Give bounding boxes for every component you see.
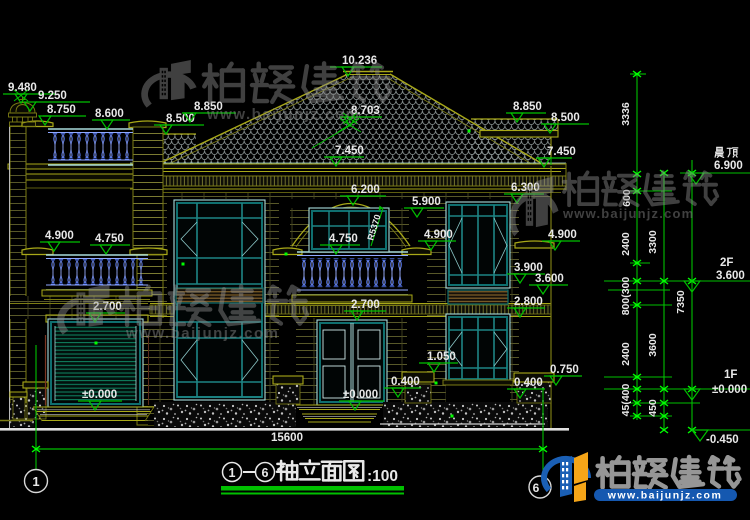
svg-text:3600: 3600 xyxy=(647,333,659,357)
svg-text:7.450: 7.450 xyxy=(547,146,576,158)
svg-text:450: 450 xyxy=(647,399,659,417)
svg-text:2400: 2400 xyxy=(620,342,632,366)
svg-text:8.850: 8.850 xyxy=(513,101,542,113)
svg-text:9.480: 9.480 xyxy=(8,82,37,94)
svg-text:-0.450: -0.450 xyxy=(706,434,739,446)
svg-text:6: 6 xyxy=(262,466,269,480)
svg-text:7350: 7350 xyxy=(675,290,687,314)
svg-text:0.400: 0.400 xyxy=(514,377,543,389)
svg-text:6: 6 xyxy=(533,481,540,495)
svg-text:3300: 3300 xyxy=(647,230,659,254)
svg-text:4.750: 4.750 xyxy=(95,233,124,245)
svg-text:±0.000: ±0.000 xyxy=(712,384,747,396)
svg-text:8.500: 8.500 xyxy=(166,113,195,125)
svg-text:2F: 2F xyxy=(720,257,733,269)
svg-text:6.200: 6.200 xyxy=(351,184,380,196)
svg-text:www.baijunjz.com: www.baijunjz.com xyxy=(562,206,694,221)
svg-text::100: :100 xyxy=(367,468,398,485)
svg-text:4.750: 4.750 xyxy=(329,233,358,245)
svg-text:4.900: 4.900 xyxy=(45,230,74,242)
svg-text:www.baijunjz.com: www.baijunjz.com xyxy=(125,325,279,342)
svg-text:9.250: 9.250 xyxy=(38,90,67,102)
svg-text:2.800: 2.800 xyxy=(514,296,543,308)
svg-text:1: 1 xyxy=(32,474,39,489)
svg-text:4.900: 4.900 xyxy=(424,229,453,241)
svg-text:3.600: 3.600 xyxy=(535,273,564,285)
svg-text:www.baijunjz.com: www.baijunjz.com xyxy=(607,490,723,502)
svg-text:0.400: 0.400 xyxy=(391,376,420,388)
svg-text:7.450: 7.450 xyxy=(335,145,364,157)
svg-text:15600: 15600 xyxy=(271,432,303,444)
svg-text:8.600: 8.600 xyxy=(95,108,124,120)
svg-text:4.900: 4.900 xyxy=(548,229,577,241)
svg-text:2400: 2400 xyxy=(620,232,632,256)
svg-text:8.500: 8.500 xyxy=(551,112,580,124)
svg-text:2.700: 2.700 xyxy=(351,299,380,311)
svg-text:±0.000: ±0.000 xyxy=(343,389,378,401)
svg-text:±0.000: ±0.000 xyxy=(82,389,117,401)
svg-text:5.900: 5.900 xyxy=(412,196,441,208)
svg-text:8.750: 8.750 xyxy=(47,104,76,116)
svg-text:1: 1 xyxy=(229,466,236,480)
svg-text:www.baijunjz.com: www.baijunjz.com xyxy=(206,106,360,123)
svg-text:1F: 1F xyxy=(724,369,737,381)
svg-text:45(400: 45(400 xyxy=(620,383,632,416)
svg-text:800(300: 800(300 xyxy=(620,277,632,316)
svg-text:0.750: 0.750 xyxy=(550,364,579,376)
svg-text:6.900: 6.900 xyxy=(714,160,743,172)
svg-text:3336: 3336 xyxy=(620,102,632,126)
svg-text:3.600: 3.600 xyxy=(716,270,745,282)
svg-text:1.050: 1.050 xyxy=(427,351,456,363)
